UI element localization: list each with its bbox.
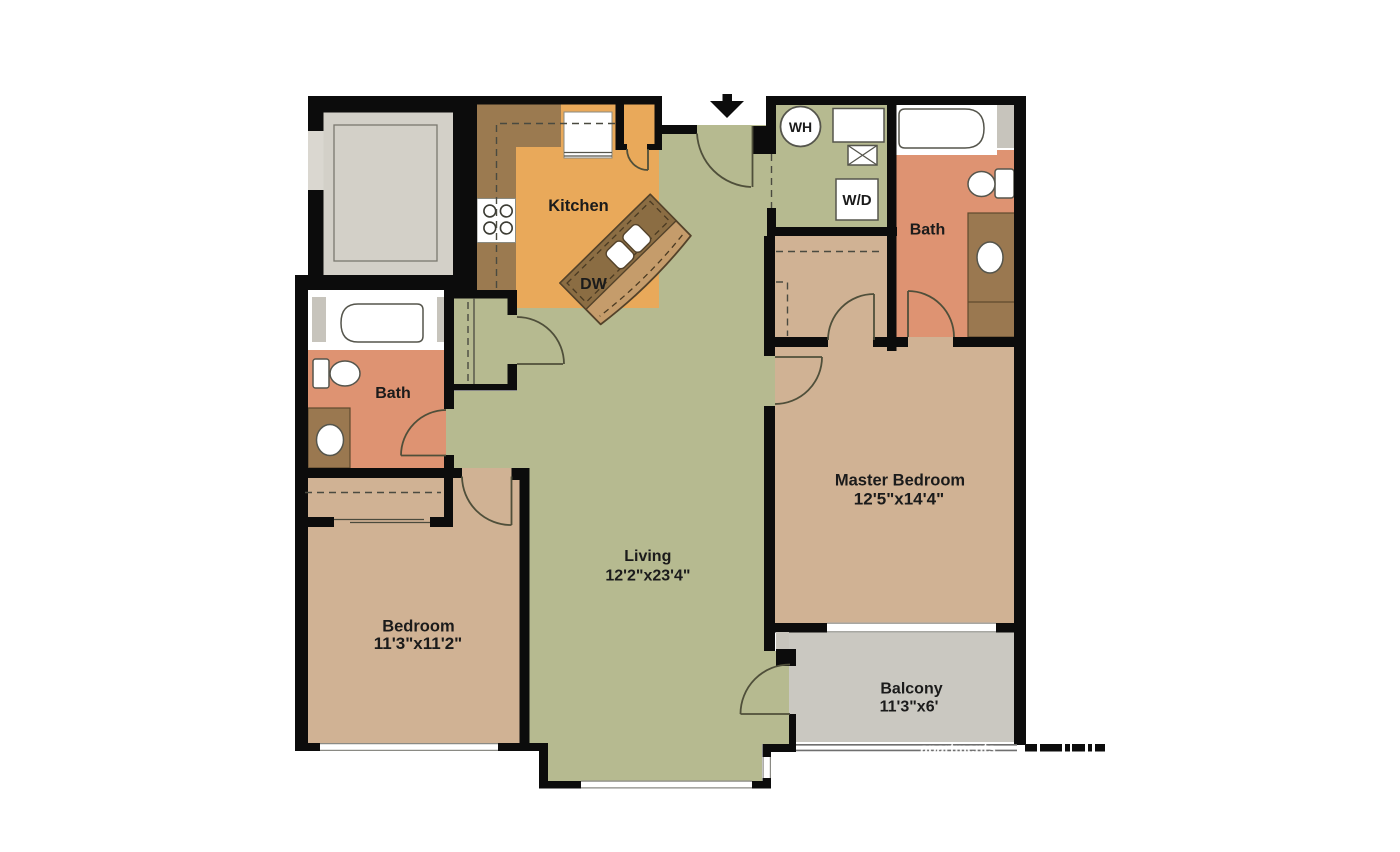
svg-text:Bath: Bath	[910, 222, 946, 239]
svg-text:11'3"x11'2": 11'3"x11'2"	[374, 634, 463, 653]
svg-text:Bath: Bath	[375, 385, 411, 402]
svg-text:W/D: W/D	[842, 192, 871, 209]
svg-text:12'5"x14'4": 12'5"x14'4"	[854, 490, 944, 509]
svg-text:Kitchen: Kitchen	[548, 197, 609, 215]
svg-text:11'3"x6': 11'3"x6'	[880, 699, 939, 716]
svg-text:WH: WH	[789, 119, 812, 135]
svg-text:Balcony: Balcony	[880, 681, 942, 698]
svg-text:apartments: apartments	[920, 740, 996, 756]
svg-text:12'2"x23'4": 12'2"x23'4"	[605, 568, 690, 585]
svg-text:Bedroom: Bedroom	[382, 618, 454, 636]
svg-text:DW: DW	[580, 276, 608, 293]
svg-text:Living: Living	[624, 548, 671, 565]
svg-text:Master Bedroom: Master Bedroom	[835, 472, 965, 490]
